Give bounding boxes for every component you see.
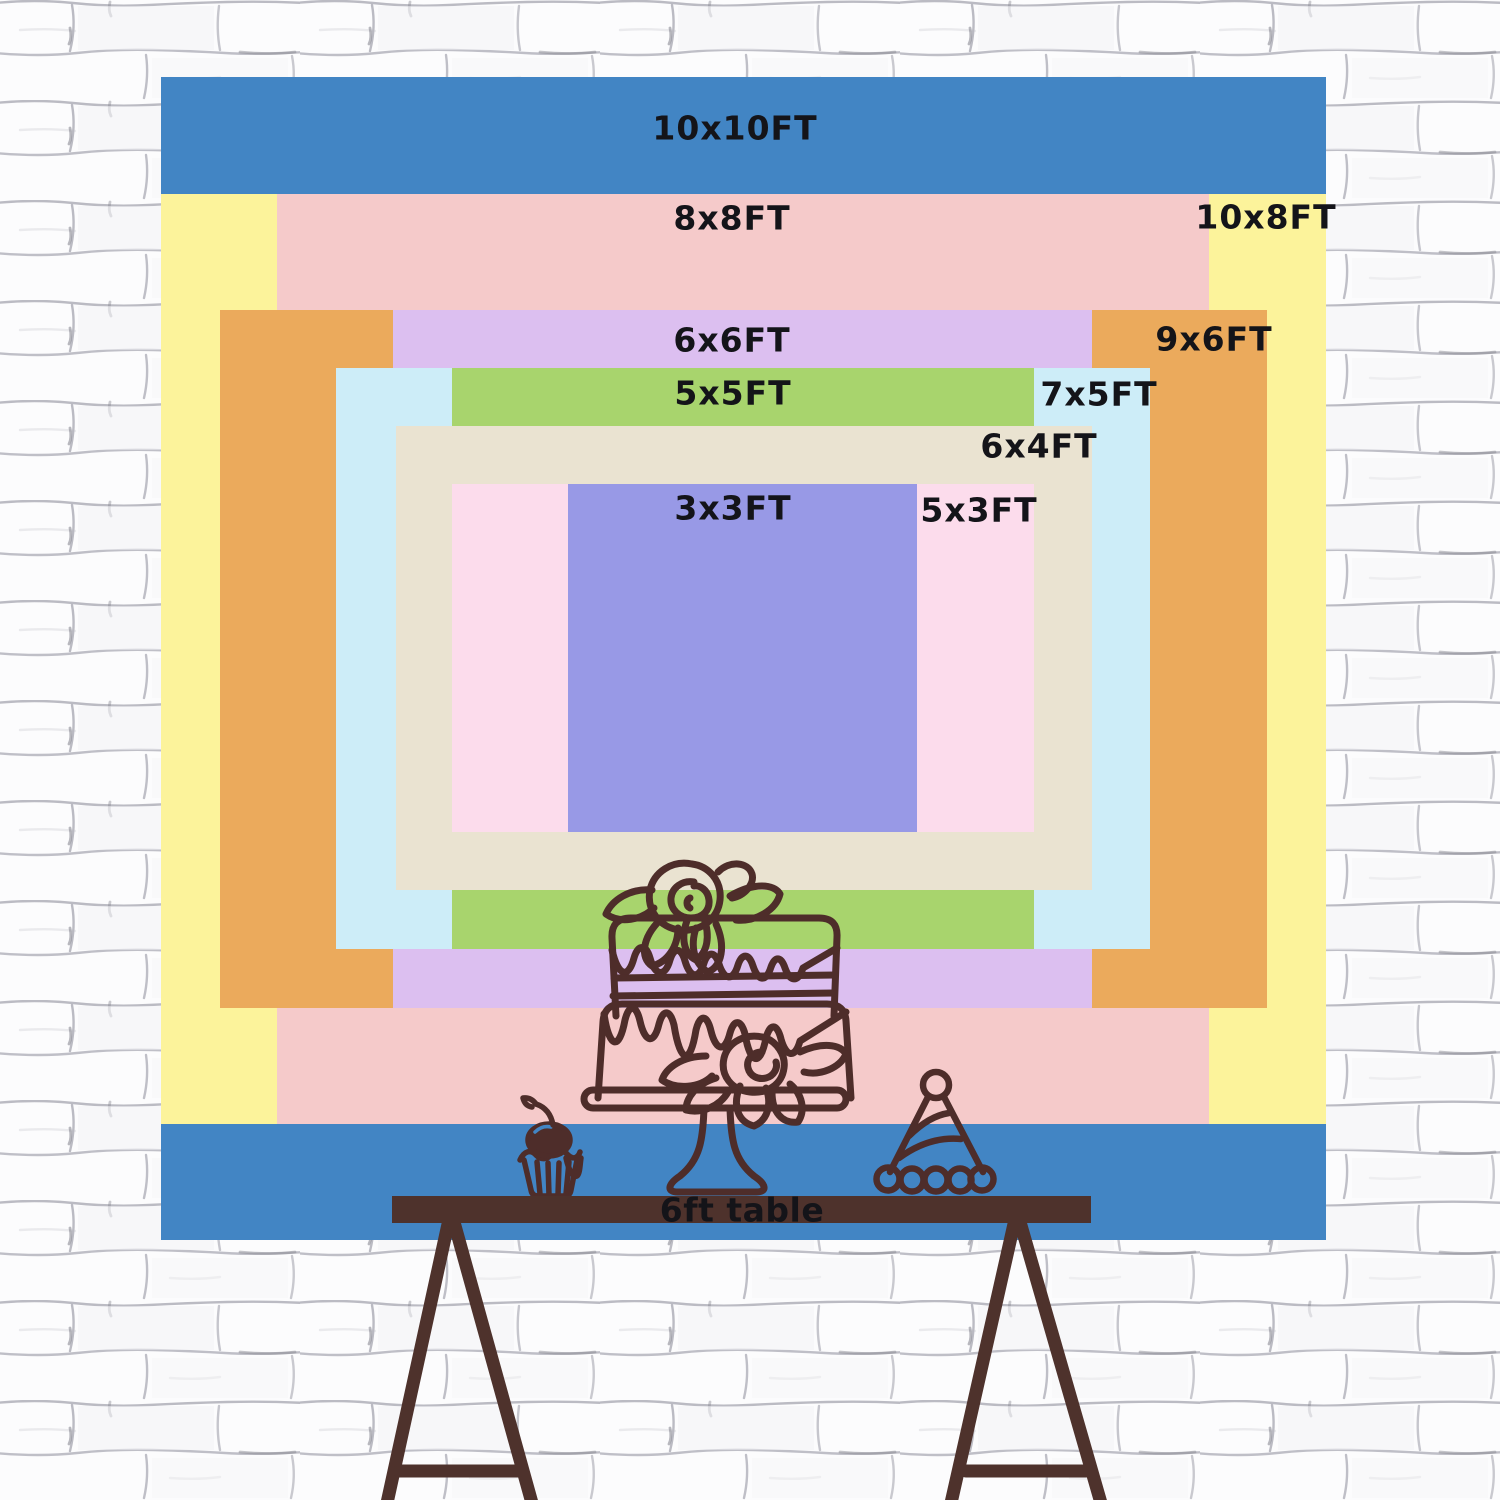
size-label-7x5: 7x5FT xyxy=(1040,375,1157,414)
size-label-6x6: 6x6FT xyxy=(673,321,790,360)
backdrop-size-chart: 10x10FT 10x8FT 8x8FT 9x6FT 6x6FT 7x5FT 5… xyxy=(0,0,1500,1500)
size-label-8x8: 8x8FT xyxy=(673,199,790,238)
size-label-5x3: 5x3FT xyxy=(920,491,1037,530)
size-label-9x6: 9x6FT xyxy=(1155,320,1272,359)
size-label-5x5: 5x5FT xyxy=(674,374,791,413)
size-rect-3x3 xyxy=(568,484,917,832)
size-label-3x3: 3x3FT xyxy=(674,489,791,528)
size-label-10x10: 10x10FT xyxy=(652,109,817,148)
size-label-6x4: 6x4FT xyxy=(980,427,1097,466)
size-label-10x8: 10x8FT xyxy=(1195,198,1336,237)
table-label: 6ft table xyxy=(660,1191,824,1230)
